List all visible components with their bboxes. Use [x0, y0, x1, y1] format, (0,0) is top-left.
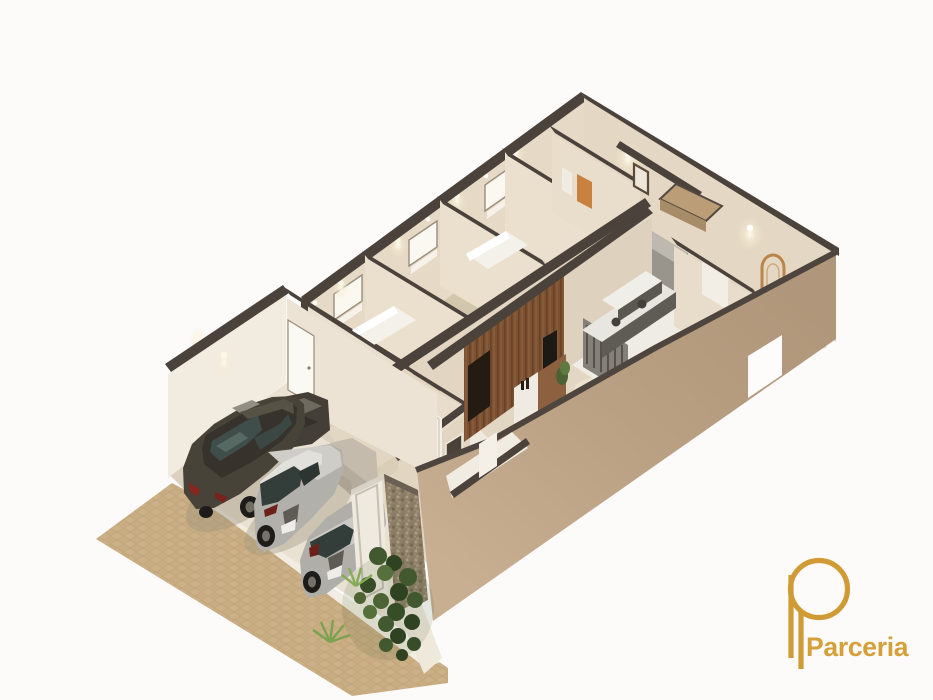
svg-text:Parceria: Parceria: [806, 632, 909, 662]
